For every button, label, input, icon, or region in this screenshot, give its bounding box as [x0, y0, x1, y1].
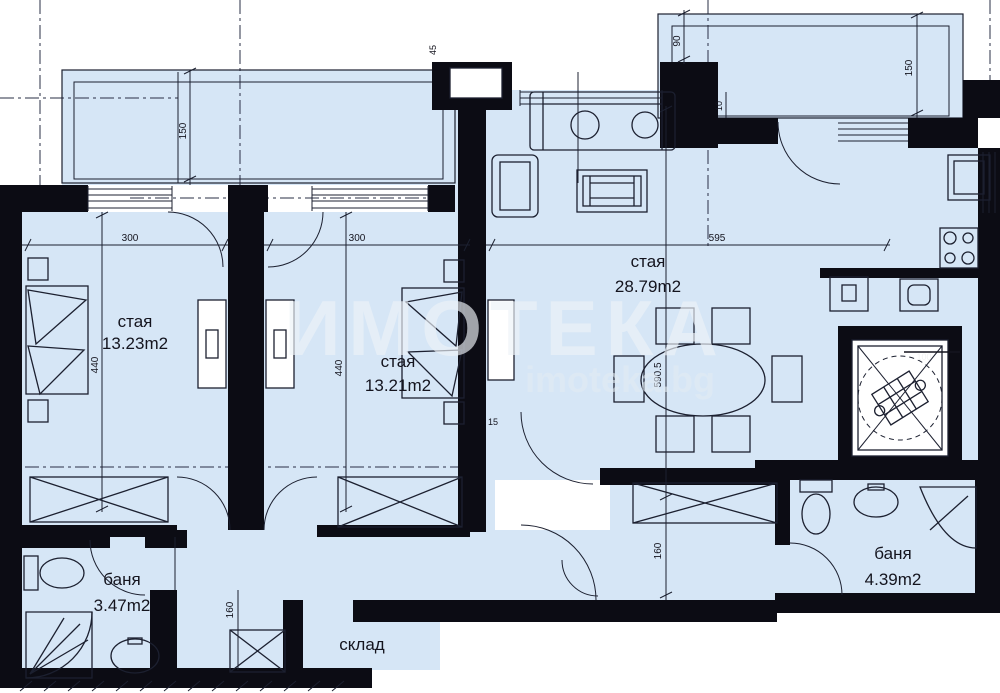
dim-column-offset: 45	[428, 45, 438, 55]
room-label-bathroom-left: баня	[103, 570, 140, 589]
room-label-storage: склад	[339, 635, 385, 654]
dim-balcony-right: 150	[904, 59, 915, 76]
dim-bedroom-left-depth: 440	[90, 356, 101, 373]
room-label-bathroom-right: баня	[874, 544, 911, 563]
dim-entry-offset: 10	[714, 101, 724, 111]
tv-cabinet-left-icon	[198, 300, 226, 388]
watermark-site: imoteka.bg	[525, 359, 715, 400]
dim-elevator-width: 100	[916, 352, 931, 362]
dim-bedroom-middle-width: 300	[349, 233, 366, 244]
dim-corridor-depth: 160	[653, 542, 664, 559]
floor-plan-drawing: 150 90 10 150 300 300 595 440 440 590.5 …	[0, 0, 1000, 693]
room-area-bathroom-right: 4.39m2	[865, 570, 922, 589]
room-area-bathroom-left: 3.47m2	[94, 596, 151, 615]
elevator-icon	[852, 340, 948, 456]
dim-wall-niche: 15	[488, 417, 498, 427]
dim-living-width: 595	[709, 233, 726, 244]
room-area-bedroom-left: 13.23m2	[102, 334, 168, 353]
dim-entry-width: 90	[672, 35, 683, 47]
dim-storage-width: 160	[225, 601, 236, 618]
room-label-bedroom-left: стая	[118, 312, 153, 331]
floor-plan-page: 150 90 10 150 300 300 595 440 440 590.5 …	[0, 0, 1000, 693]
room-label-living: стая	[631, 252, 666, 271]
dim-bedroom-left-width: 300	[122, 233, 139, 244]
dim-balcony-left: 150	[178, 122, 189, 139]
room-area-bedroom-middle: 13.21m2	[365, 376, 431, 395]
